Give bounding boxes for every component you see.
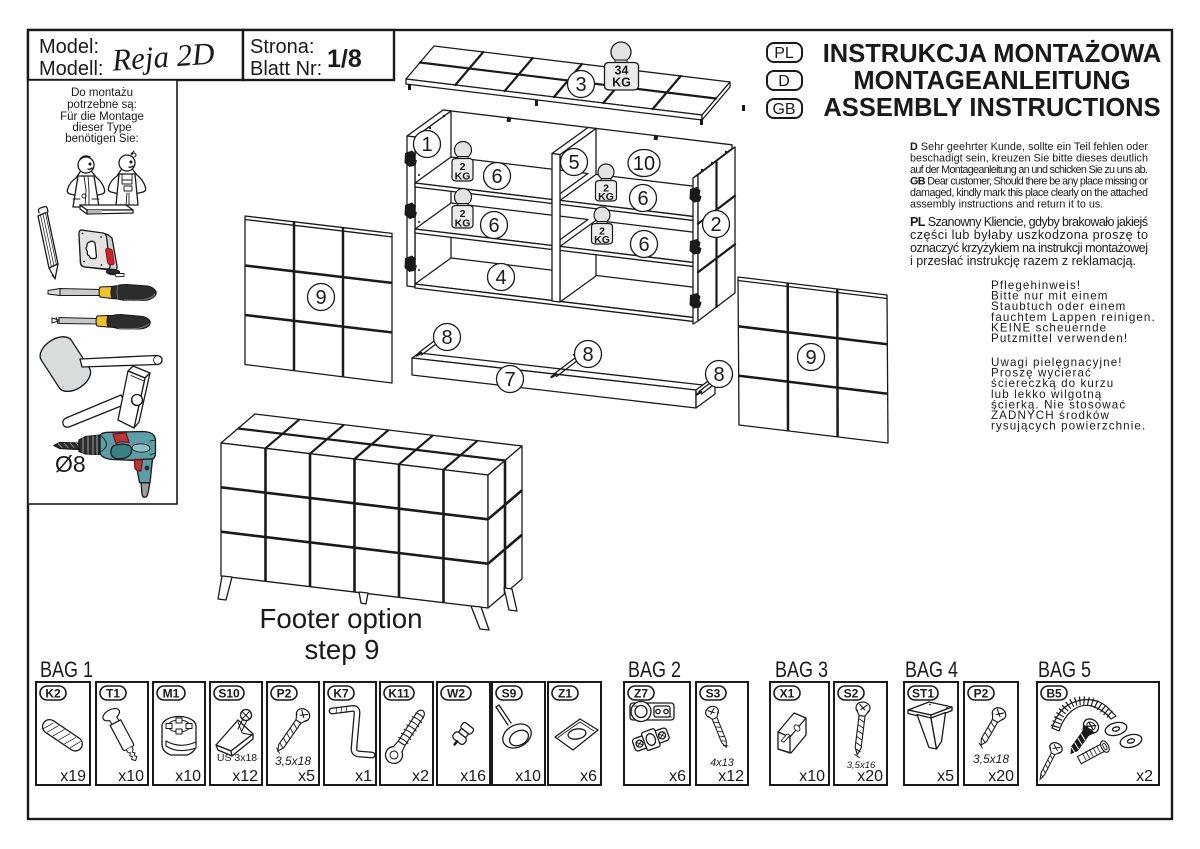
svg-text:X1: X1 bbox=[780, 687, 795, 701]
svg-text:W2: W2 bbox=[447, 687, 465, 701]
svg-text:K11: K11 bbox=[388, 687, 410, 701]
svg-text:8: 8 bbox=[441, 327, 452, 349]
svg-text:x10: x10 bbox=[118, 768, 144, 785]
svg-text:x16: x16 bbox=[460, 768, 486, 785]
svg-text:S10: S10 bbox=[218, 687, 240, 701]
svg-text:D Sehr geehrter Kunde, sollte: D Sehr geehrter Kunde, sollte ein Teil f… bbox=[910, 141, 1148, 153]
svg-text:8: 8 bbox=[713, 364, 724, 386]
svg-text:M1: M1 bbox=[163, 687, 180, 701]
svg-text:8: 8 bbox=[582, 344, 593, 366]
svg-text:oznaczyć krzyżykiem na instruk: oznaczyć krzyżykiem na instrukcji montaż… bbox=[910, 241, 1148, 255]
svg-text:Strona:: Strona: bbox=[250, 36, 314, 58]
svg-text:T1: T1 bbox=[106, 687, 120, 701]
svg-text:9: 9 bbox=[805, 347, 816, 369]
svg-text:Do montażu: Do montażu bbox=[71, 87, 133, 99]
svg-text:KG: KG bbox=[594, 234, 610, 246]
svg-text:6: 6 bbox=[491, 166, 502, 188]
svg-text:P2: P2 bbox=[277, 687, 292, 701]
svg-text:rysujących powierzchnie.: rysujących powierzchnie. bbox=[991, 420, 1146, 433]
svg-text:Z1: Z1 bbox=[558, 687, 572, 701]
svg-text:2: 2 bbox=[710, 214, 721, 236]
svg-text:x10: x10 bbox=[799, 768, 825, 785]
svg-text:D: D bbox=[778, 73, 790, 90]
svg-text:S9: S9 bbox=[502, 687, 517, 701]
svg-text:6: 6 bbox=[637, 188, 648, 210]
svg-text:GB Dear customer, Should there: GB Dear customer, Should there be any pl… bbox=[910, 176, 1148, 188]
svg-text:damaged, kindly mark this plac: damaged, kindly mark this place clearly … bbox=[910, 187, 1148, 199]
svg-text:K2: K2 bbox=[45, 687, 61, 701]
svg-text:x12: x12 bbox=[232, 768, 258, 785]
svg-text:Footer option: Footer option bbox=[260, 603, 423, 634]
svg-text:x19: x19 bbox=[60, 768, 86, 785]
svg-text:i przesłać instrukcję razem z: i przesłać instrukcję razem z reklamacją… bbox=[910, 254, 1136, 268]
svg-text:potrzebne są:: potrzebne są: bbox=[67, 99, 137, 111]
svg-text:Modell:: Modell: bbox=[39, 58, 103, 80]
svg-text:x6: x6 bbox=[669, 768, 686, 785]
svg-text:INSTRUKCJA MONTAŻOWA: INSTRUKCJA MONTAŻOWA bbox=[823, 40, 1162, 68]
svg-text:KG: KG bbox=[455, 171, 471, 183]
svg-text:K7: K7 bbox=[333, 687, 349, 701]
svg-text:MONTAGEANLEITUNG: MONTAGEANLEITUNG bbox=[853, 67, 1130, 95]
svg-text:x10: x10 bbox=[515, 768, 541, 785]
svg-text:x1: x1 bbox=[355, 768, 372, 785]
svg-text:PL: PL bbox=[774, 45, 794, 62]
svg-text:x20: x20 bbox=[988, 768, 1014, 785]
svg-text:x2: x2 bbox=[412, 768, 429, 785]
svg-text:BAG 1: BAG 1 bbox=[40, 657, 93, 682]
svg-text:Z7: Z7 bbox=[634, 687, 648, 701]
svg-text:x2: x2 bbox=[1136, 768, 1153, 785]
svg-text:PL Szanowny Kliencie, gdyby br: PL Szanowny Kliencie, gdyby brakowało ja… bbox=[910, 215, 1148, 229]
svg-text:x10: x10 bbox=[175, 768, 201, 785]
svg-text:Putzmittel verwenden!: Putzmittel verwenden! bbox=[991, 332, 1128, 345]
svg-text:auf der Montageanleitung an un: auf der Montageanleitung an und schicken… bbox=[910, 164, 1148, 176]
svg-text:step 9: step 9 bbox=[305, 634, 380, 665]
svg-text:S3: S3 bbox=[706, 687, 721, 701]
svg-text:Model:: Model: bbox=[39, 36, 99, 58]
svg-text:Ø8: Ø8 bbox=[55, 451, 86, 477]
svg-text:x12: x12 bbox=[718, 768, 744, 785]
svg-text:10: 10 bbox=[633, 153, 655, 175]
svg-text:GB: GB bbox=[772, 101, 795, 118]
svg-text:1/8: 1/8 bbox=[327, 45, 362, 73]
svg-text:ST1: ST1 bbox=[912, 687, 934, 701]
svg-text:9: 9 bbox=[315, 287, 326, 309]
svg-text:4x13: 4x13 bbox=[710, 757, 735, 769]
svg-text:beschadigt sein, kreuzen Sie b: beschadigt sein, kreuzen Sie bitte diese… bbox=[910, 153, 1148, 165]
svg-text:BAG 3: BAG 3 bbox=[775, 657, 828, 682]
svg-text:3,5x18: 3,5x18 bbox=[275, 754, 311, 768]
svg-text:BAG 2: BAG 2 bbox=[628, 657, 681, 682]
svg-text:3,5x16: 3,5x16 bbox=[847, 760, 876, 771]
svg-text:7: 7 bbox=[504, 369, 515, 391]
svg-text:Reja 2D: Reja 2D bbox=[110, 35, 216, 77]
svg-text:assembly instructions and retu: assembly instructions and return it to u… bbox=[910, 199, 1103, 211]
svg-text:benötigen Sie:: benötigen Sie: bbox=[65, 133, 139, 145]
svg-text:4: 4 bbox=[495, 267, 506, 289]
svg-text:x5: x5 bbox=[937, 768, 954, 785]
svg-text:US 3x18: US 3x18 bbox=[217, 752, 257, 764]
svg-text:5: 5 bbox=[568, 152, 579, 174]
svg-text:części lub byłaby uszkodzona p: części lub byłaby uszkodzona proszę to bbox=[910, 228, 1148, 242]
svg-text:KG: KG bbox=[455, 218, 471, 230]
svg-text:BAG 5: BAG 5 bbox=[1038, 657, 1091, 682]
svg-text:1: 1 bbox=[421, 134, 432, 156]
svg-text:KG: KG bbox=[612, 76, 631, 90]
svg-text:6: 6 bbox=[488, 215, 499, 237]
svg-text:B5: B5 bbox=[1046, 687, 1062, 701]
svg-text:3,5x18: 3,5x18 bbox=[973, 752, 1009, 766]
svg-text:S2: S2 bbox=[844, 687, 859, 701]
svg-text:BAG 4: BAG 4 bbox=[905, 657, 958, 682]
svg-text:x5: x5 bbox=[298, 768, 315, 785]
svg-text:Blatt Nr:: Blatt Nr: bbox=[250, 58, 322, 80]
svg-text:P2: P2 bbox=[974, 687, 989, 701]
svg-text:KG: KG bbox=[598, 191, 614, 203]
svg-text:ASSEMBLY INSTRUCTIONS: ASSEMBLY INSTRUCTIONS bbox=[823, 94, 1160, 122]
svg-text:x6: x6 bbox=[580, 768, 597, 785]
svg-text:6: 6 bbox=[638, 234, 649, 256]
svg-text:3: 3 bbox=[575, 74, 586, 96]
